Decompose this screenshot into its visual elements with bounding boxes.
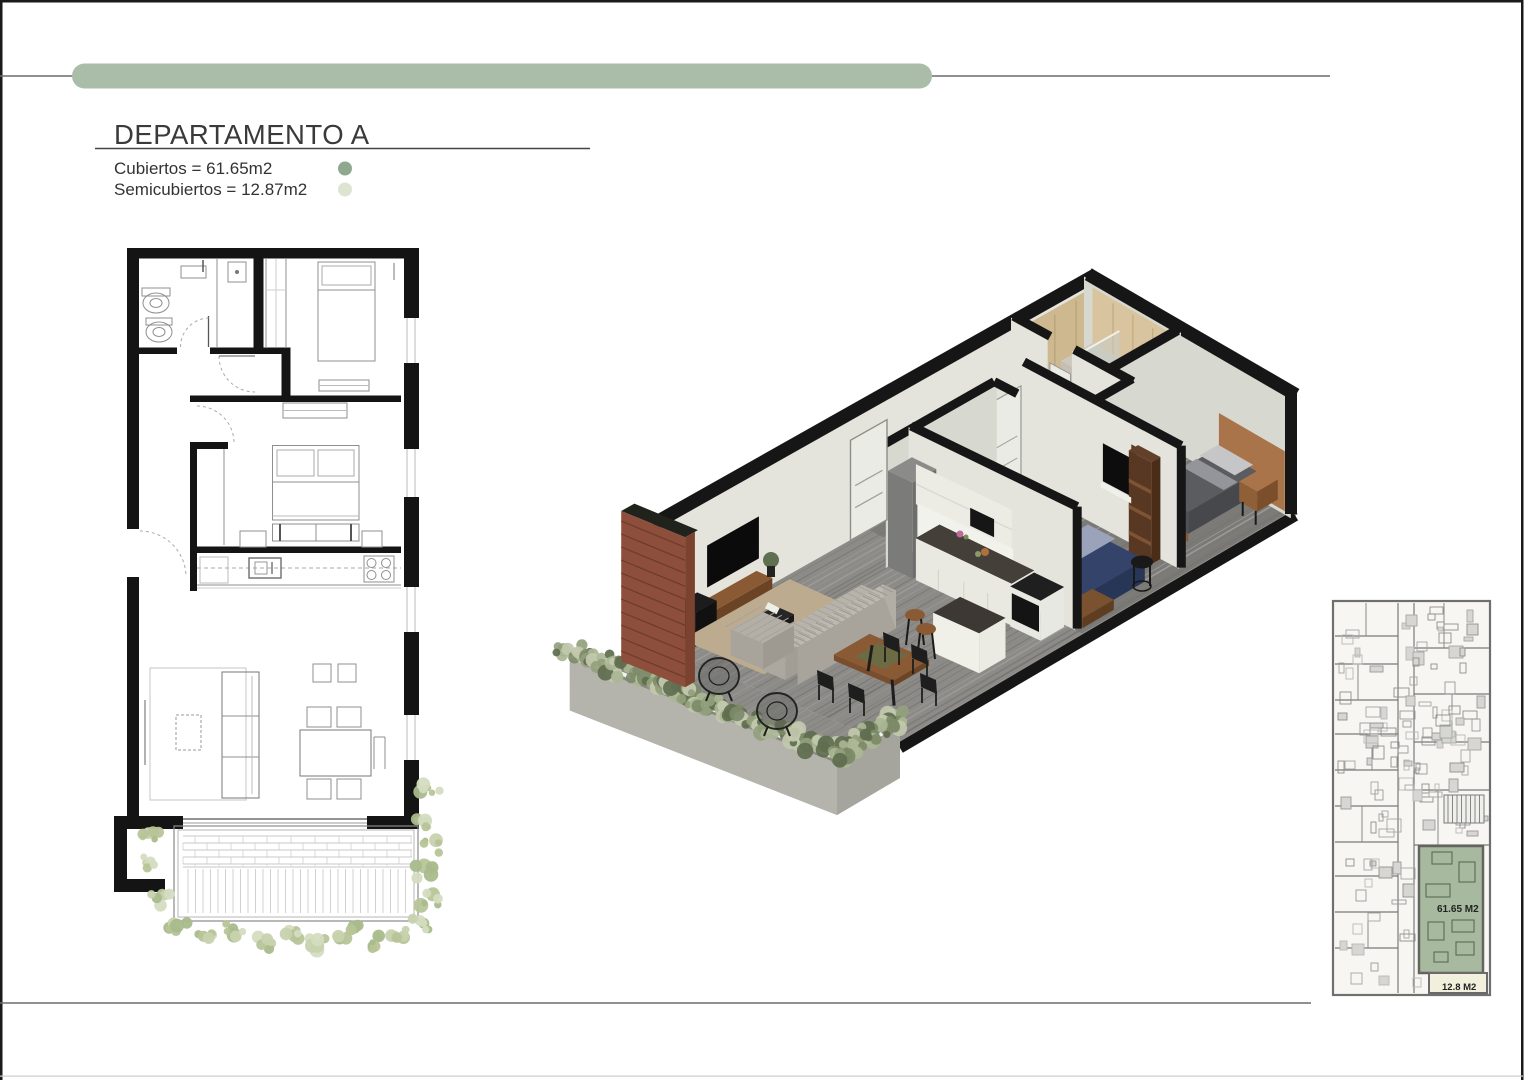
svg-text:Cubiertos = 61.65m2: Cubiertos = 61.65m2 — [114, 159, 272, 178]
svg-text:61.65 M2: 61.65 M2 — [1437, 904, 1479, 915]
svg-text:12.8 M2: 12.8 M2 — [1442, 982, 1476, 993]
svg-text:Semicubiertos = 12.87m2: Semicubiertos = 12.87m2 — [114, 180, 307, 199]
svg-text:DEPARTAMENTO A: DEPARTAMENTO A — [114, 119, 370, 150]
